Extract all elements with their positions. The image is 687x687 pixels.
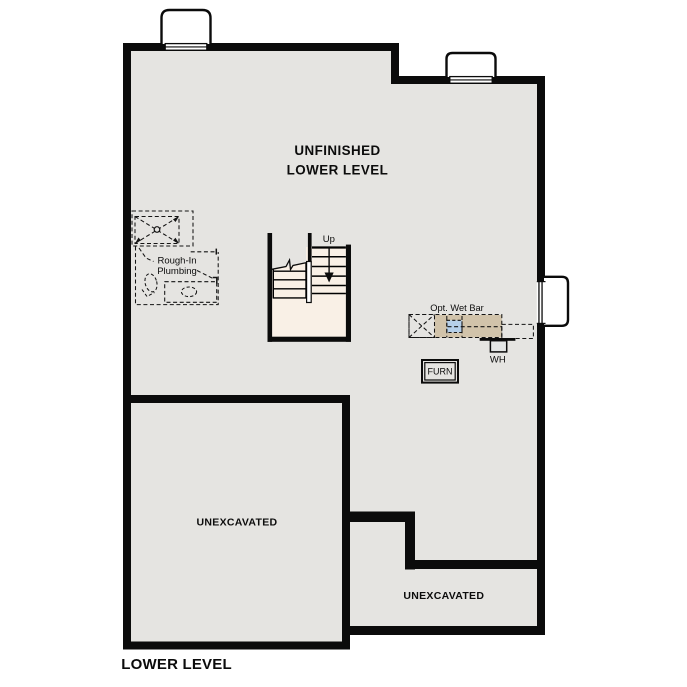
svg-text:UNFINISHED: UNFINISHED (294, 143, 380, 158)
svg-text:FURN: FURN (428, 367, 453, 377)
svg-text:Rough-In: Rough-In (157, 255, 196, 266)
svg-text:LOWER LEVEL: LOWER LEVEL (121, 656, 232, 673)
svg-text:Opt. Wet Bar: Opt. Wet Bar (430, 303, 484, 313)
svg-text:Plumbing: Plumbing (157, 266, 197, 277)
svg-text:WH: WH (490, 355, 506, 366)
svg-text:LOWER LEVEL: LOWER LEVEL (287, 163, 389, 178)
svg-text:UNEXCAVATED: UNEXCAVATED (197, 517, 278, 529)
svg-text:Up: Up (323, 234, 335, 245)
svg-text:UNEXCAVATED: UNEXCAVATED (403, 590, 484, 602)
